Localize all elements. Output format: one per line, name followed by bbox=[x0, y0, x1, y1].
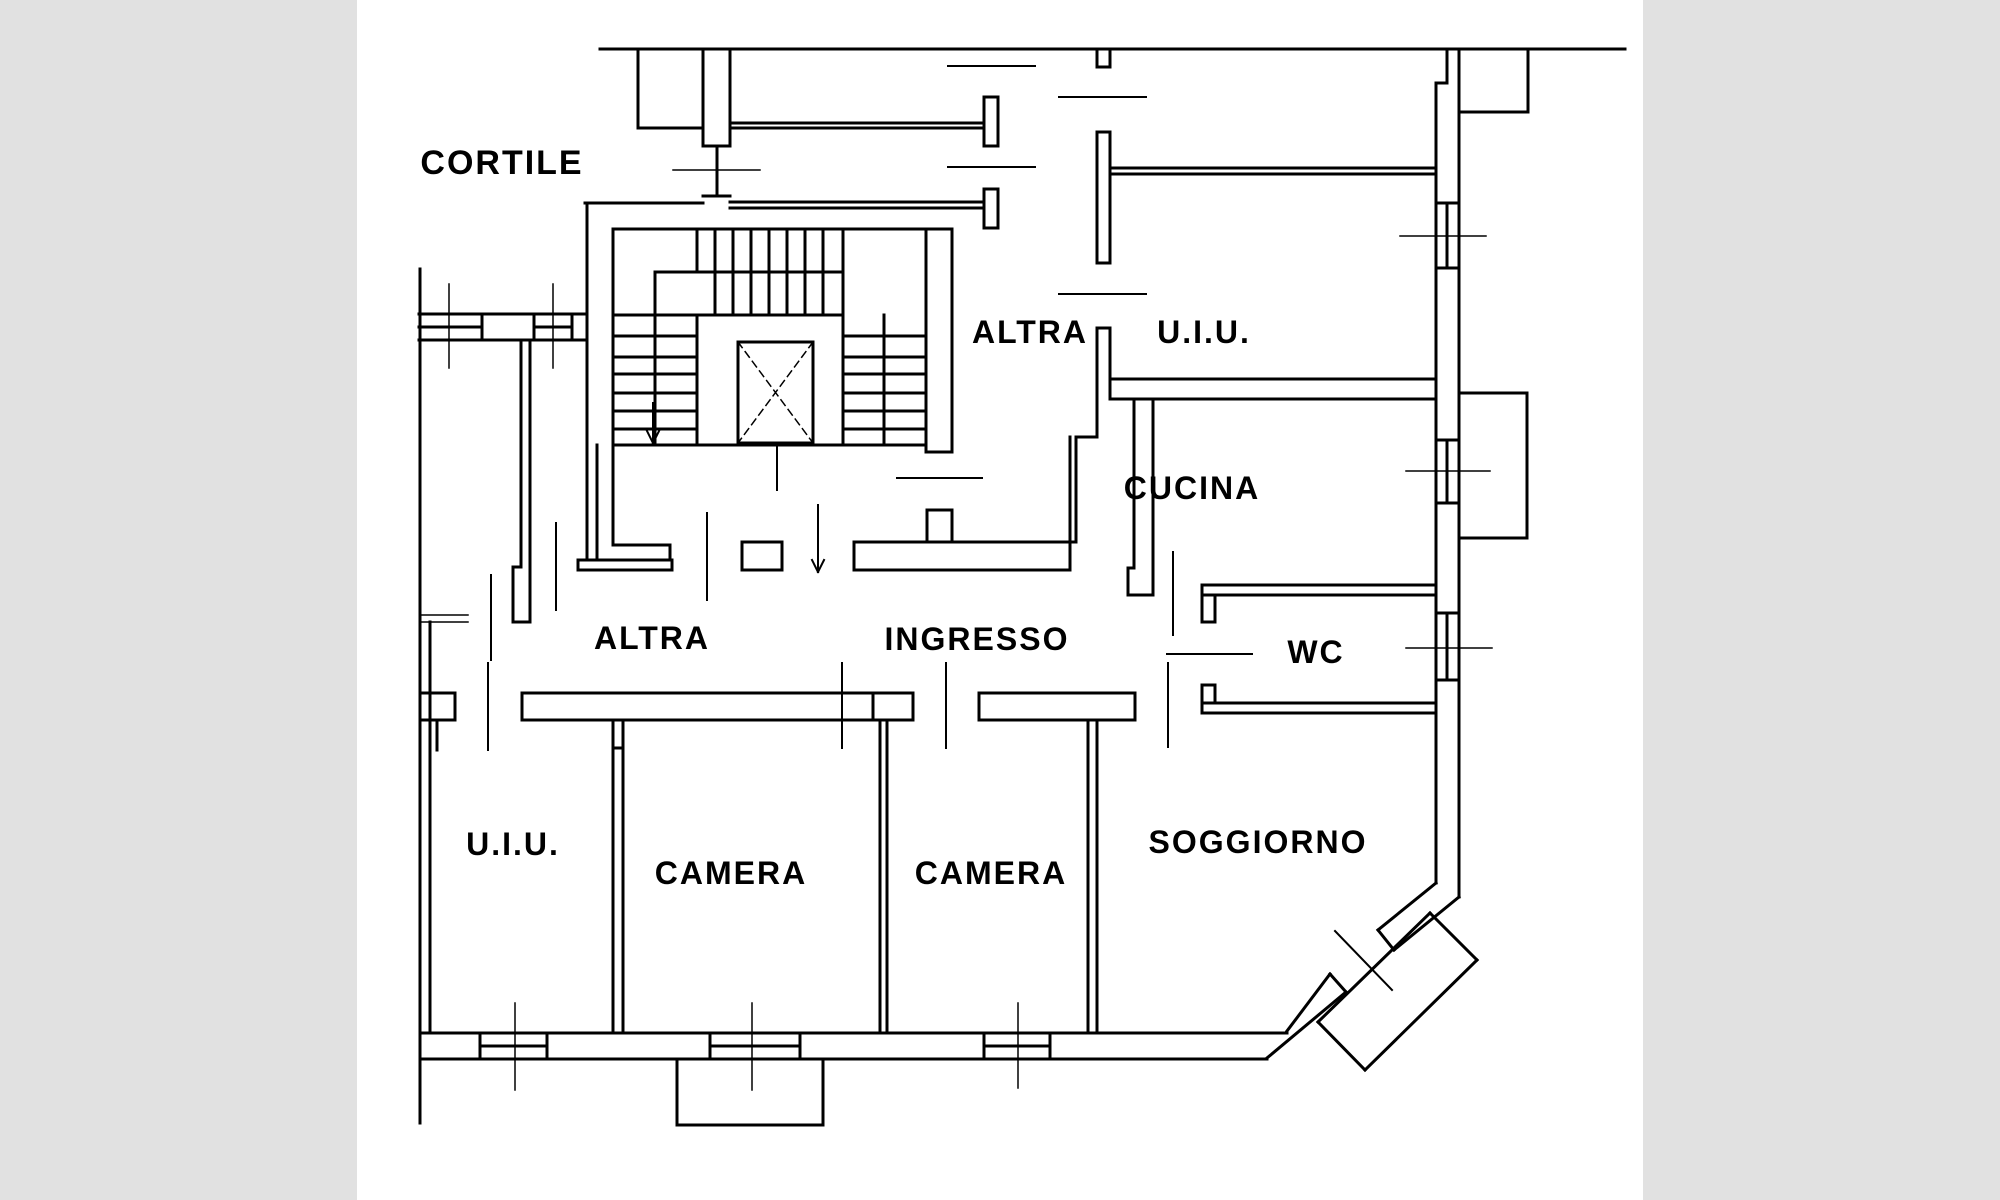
room-label-uiu-top: U.I.U. bbox=[1157, 314, 1251, 350]
room-label-ingresso: INGRESSO bbox=[885, 621, 1070, 657]
room-label-wc: WC bbox=[1287, 634, 1344, 670]
room-label-uiu-left: U.I.U. bbox=[466, 826, 560, 862]
room-label-altra-top: ALTRA bbox=[972, 314, 1088, 350]
room-label-camera-right: CAMERA bbox=[915, 855, 1067, 891]
room-label-camera-left: CAMERA bbox=[655, 855, 807, 891]
room-label-cortile: CORTILE bbox=[420, 144, 583, 182]
floorplan-page: CORTILEALTRAU.I.U.CUCINAWCALTRAINGRESSOU… bbox=[0, 0, 2000, 1200]
room-label-cucina: CUCINA bbox=[1124, 470, 1260, 506]
room-label-soggiorno: SOGGIORNO bbox=[1149, 824, 1368, 860]
floorplan-drawing: CORTILEALTRAU.I.U.CUCINAWCALTRAINGRESSOU… bbox=[0, 0, 2000, 1200]
room-label-altra-mid: ALTRA bbox=[594, 620, 710, 656]
